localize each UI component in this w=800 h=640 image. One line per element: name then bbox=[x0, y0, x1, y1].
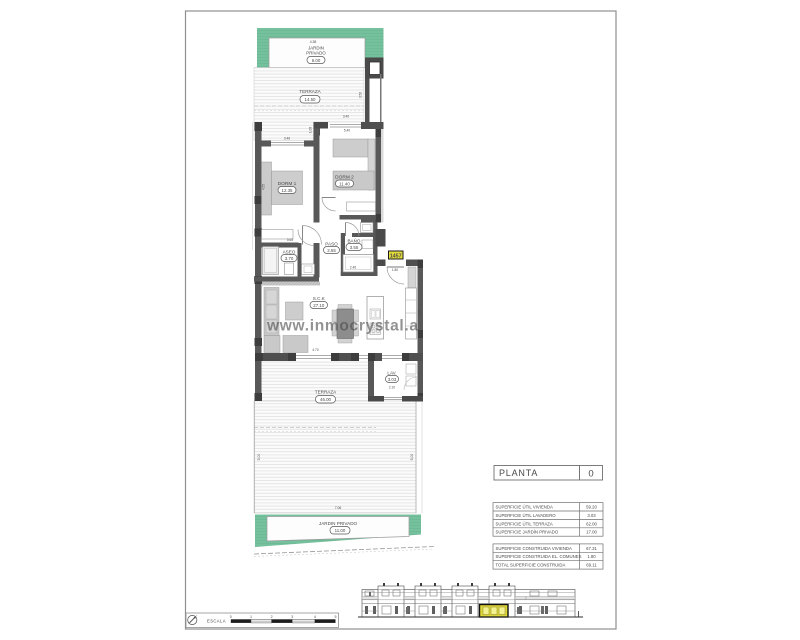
svg-text:SUPERFICIE ÚTIL TERRAZA: SUPERFICIE ÚTIL TERRAZA bbox=[496, 521, 553, 526]
svg-text:SUPERFICIE ÚTIL VIVIENDA: SUPERFICIE ÚTIL VIVIENDA bbox=[496, 505, 554, 510]
svg-text:BAÑO: BAÑO bbox=[347, 238, 360, 244]
svg-text:3.03: 3.03 bbox=[388, 377, 397, 382]
svg-text:1.80: 1.80 bbox=[587, 554, 596, 559]
svg-text:PLANTA: PLANTA bbox=[499, 468, 538, 478]
svg-text:67.31: 67.31 bbox=[586, 546, 597, 551]
svg-text:59.20: 59.20 bbox=[586, 505, 597, 510]
svg-text:3.55: 3.55 bbox=[350, 245, 359, 250]
svg-text:2.10: 2.10 bbox=[389, 386, 395, 390]
svg-text:62.00: 62.00 bbox=[586, 521, 597, 526]
svg-text:5.00: 5.00 bbox=[410, 454, 414, 461]
svg-text:3.50: 3.50 bbox=[359, 92, 363, 98]
svg-text:TERRAZA: TERRAZA bbox=[315, 390, 337, 395]
svg-text:3.70: 3.70 bbox=[285, 256, 294, 261]
svg-text:4.38: 4.38 bbox=[310, 40, 317, 44]
svg-text:46.00: 46.00 bbox=[320, 397, 332, 402]
svg-text:3: 3 bbox=[291, 615, 293, 619]
svg-text:TOTAL SUPERFICIE CONSTRUIDA: TOTAL SUPERFICIE CONSTRUIDA bbox=[496, 563, 566, 568]
svg-text:www.inmocrystal.a: www.inmocrystal.a bbox=[266, 318, 419, 335]
svg-text:2.26: 2.26 bbox=[418, 310, 422, 316]
svg-text:0: 0 bbox=[588, 469, 593, 480]
svg-text:2.46: 2.46 bbox=[350, 266, 356, 270]
svg-text:69.11: 69.11 bbox=[586, 563, 597, 568]
svg-text:11.00: 11.00 bbox=[335, 528, 346, 533]
svg-text:14.50: 14.50 bbox=[305, 97, 317, 102]
svg-text:ASEO: ASEO bbox=[283, 250, 296, 255]
svg-text:17.00: 17.00 bbox=[586, 530, 597, 535]
svg-text:5.00: 5.00 bbox=[257, 454, 261, 461]
svg-text:SUPERFICIE ÚTIL LAVADERO: SUPERFICIE ÚTIL LAVADERO bbox=[496, 513, 557, 518]
svg-text:0: 0 bbox=[230, 615, 232, 619]
svg-text:PRIVADO: PRIVADO bbox=[306, 51, 326, 56]
svg-text:DORM 2: DORM 2 bbox=[335, 175, 354, 181]
svg-text:LAV.: LAV. bbox=[387, 371, 396, 376]
svg-text:PASO: PASO bbox=[325, 242, 338, 247]
svg-text:1457: 1457 bbox=[390, 253, 402, 259]
svg-text:S.C.K: S.C.K bbox=[313, 296, 326, 301]
svg-text:3.46: 3.46 bbox=[284, 137, 290, 141]
svg-text:7.06: 7.06 bbox=[335, 506, 342, 510]
svg-text:SUPERFICIE JARDÍN PRIVADO: SUPERFICIE JARDÍN PRIVADO bbox=[496, 530, 559, 535]
svg-text:3.40: 3.40 bbox=[343, 115, 349, 119]
svg-text:ESCALA: ESCALA bbox=[207, 619, 226, 624]
svg-text:4: 4 bbox=[314, 615, 316, 619]
svg-text:27.10: 27.10 bbox=[313, 303, 325, 308]
svg-text:4.55: 4.55 bbox=[262, 184, 266, 190]
svg-text:6.00: 6.00 bbox=[312, 58, 321, 63]
svg-text:0.65: 0.65 bbox=[287, 238, 293, 242]
svg-text:12.35: 12.35 bbox=[282, 188, 294, 193]
svg-text:2.55: 2.55 bbox=[327, 248, 336, 253]
svg-text:5: 5 bbox=[335, 615, 337, 619]
svg-text:1.08: 1.08 bbox=[309, 127, 313, 133]
svg-text:1.80: 1.80 bbox=[392, 268, 398, 272]
svg-text:DORM 1: DORM 1 bbox=[278, 181, 297, 187]
svg-text:JARDIN PRIVADO: JARDIN PRIVADO bbox=[319, 521, 358, 526]
svg-text:5.40: 5.40 bbox=[344, 129, 350, 133]
svg-text:3.03: 3.03 bbox=[587, 513, 596, 518]
svg-text:2: 2 bbox=[271, 615, 273, 619]
svg-text:TERRAZA: TERRAZA bbox=[299, 89, 321, 94]
svg-text:SUPERFICIE CONSTRUIDA VIVIENDA: SUPERFICIE CONSTRUIDA VIVIENDA bbox=[496, 546, 573, 551]
svg-text:4.70: 4.70 bbox=[312, 348, 318, 352]
svg-text:1: 1 bbox=[250, 615, 252, 619]
svg-text:SUPERFICIE CONSTRUIDA EL. COMU: SUPERFICIE CONSTRUIDA EL. COMUNES bbox=[496, 554, 582, 559]
svg-text:11.40: 11.40 bbox=[339, 181, 350, 186]
